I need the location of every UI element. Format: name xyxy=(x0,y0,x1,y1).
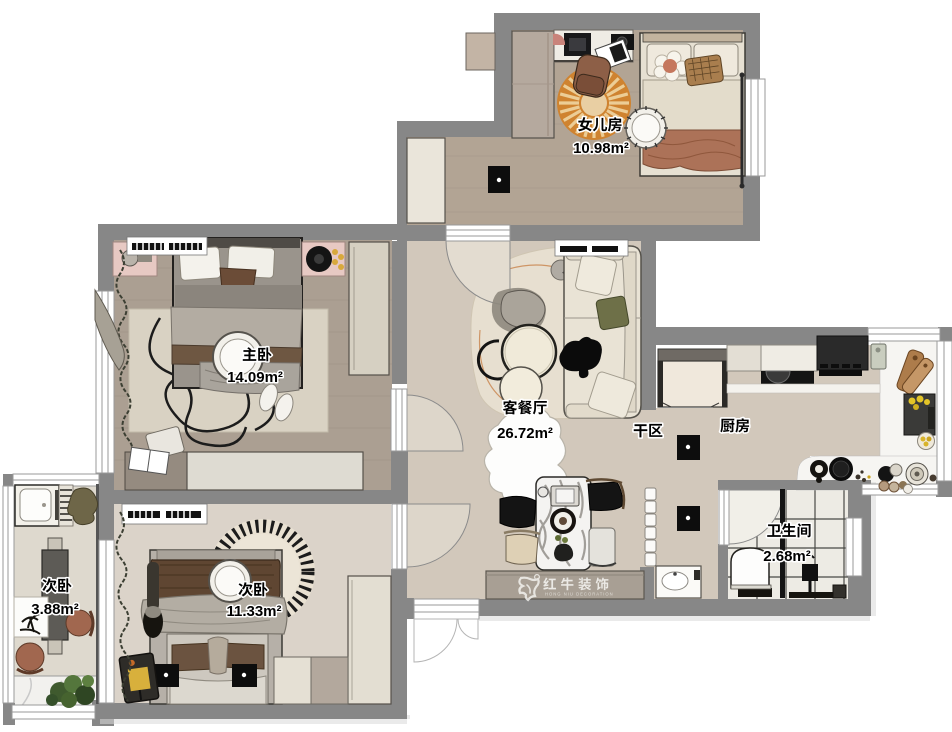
svg-text:2.68m²: 2.68m² xyxy=(763,548,811,565)
svg-text:3.88m²: 3.88m² xyxy=(31,601,79,618)
svg-text:26.72m²: 26.72m² xyxy=(497,425,553,442)
svg-text:11.33m²: 11.33m² xyxy=(226,603,281,620)
svg-text:HONG NIU DECORATION: HONG NIU DECORATION xyxy=(545,592,614,597)
svg-text:10.98m²: 10.98m² xyxy=(573,140,629,157)
svg-text:14.09m²: 14.09m² xyxy=(227,369,283,386)
